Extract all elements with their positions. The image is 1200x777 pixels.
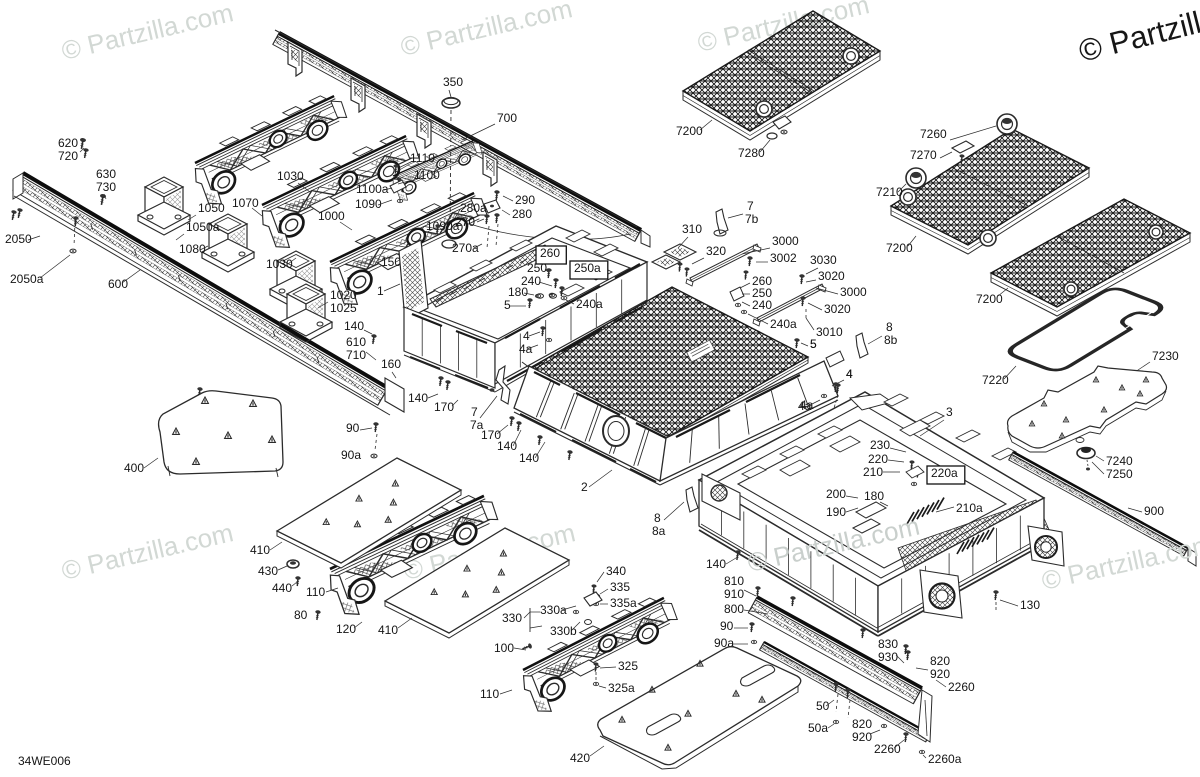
svg-text:230: 230 bbox=[870, 438, 890, 452]
svg-text:810: 810 bbox=[724, 574, 744, 588]
svg-text:3002: 3002 bbox=[770, 251, 797, 265]
svg-text:2260: 2260 bbox=[874, 742, 901, 756]
svg-text:280: 280 bbox=[512, 207, 532, 221]
svg-text:7280: 7280 bbox=[738, 146, 765, 160]
svg-text:330: 330 bbox=[502, 611, 522, 625]
svg-text:4a: 4a bbox=[798, 399, 812, 413]
svg-text:110: 110 bbox=[480, 687, 499, 701]
svg-text:1110: 1110 bbox=[410, 151, 435, 165]
svg-text:710: 710 bbox=[346, 348, 366, 362]
svg-text:720: 720 bbox=[58, 149, 78, 163]
svg-text:1100a: 1100a bbox=[356, 182, 389, 196]
svg-text:8: 8 bbox=[654, 511, 661, 525]
svg-text:220: 220 bbox=[868, 452, 888, 466]
svg-text:90a: 90a bbox=[341, 448, 361, 462]
svg-text:5: 5 bbox=[504, 298, 511, 312]
svg-text:270: 270 bbox=[455, 215, 475, 229]
svg-text:7200: 7200 bbox=[976, 292, 1003, 306]
svg-text:8b: 8b bbox=[884, 333, 898, 347]
svg-text:610: 610 bbox=[346, 335, 366, 349]
svg-text:7200: 7200 bbox=[676, 124, 703, 138]
svg-text:330b: 330b bbox=[550, 624, 577, 638]
svg-text:340: 340 bbox=[606, 564, 626, 578]
svg-text:3000: 3000 bbox=[772, 234, 799, 248]
svg-text:910: 910 bbox=[724, 587, 744, 601]
svg-text:270a: 270a bbox=[452, 241, 479, 255]
svg-text:2260: 2260 bbox=[948, 680, 975, 694]
svg-text:900: 900 bbox=[1144, 504, 1164, 518]
svg-text:1050a: 1050a bbox=[186, 220, 220, 234]
svg-text:240a: 240a bbox=[576, 297, 603, 311]
svg-text:170: 170 bbox=[434, 400, 454, 414]
svg-text:310: 310 bbox=[682, 222, 702, 236]
svg-text:4: 4 bbox=[846, 367, 853, 381]
svg-text:250a: 250a bbox=[574, 261, 601, 275]
svg-text:4a: 4a bbox=[519, 342, 533, 356]
svg-text:140: 140 bbox=[344, 319, 364, 333]
svg-text:240a: 240a bbox=[770, 317, 797, 331]
svg-text:180: 180 bbox=[508, 285, 528, 299]
svg-text:440: 440 bbox=[272, 581, 292, 595]
svg-text:290: 290 bbox=[515, 193, 535, 207]
svg-text:200: 200 bbox=[826, 487, 846, 501]
svg-text:325a: 325a bbox=[608, 681, 635, 695]
svg-text:8a: 8a bbox=[652, 524, 666, 538]
svg-text:3020: 3020 bbox=[824, 302, 851, 316]
svg-text:180: 180 bbox=[864, 489, 884, 503]
svg-text:920: 920 bbox=[930, 667, 950, 681]
svg-text:410: 410 bbox=[378, 623, 398, 637]
svg-text:930: 930 bbox=[878, 650, 898, 664]
svg-text:820: 820 bbox=[852, 717, 872, 731]
svg-text:34WE006: 34WE006 bbox=[18, 754, 71, 768]
svg-text:1: 1 bbox=[377, 284, 384, 298]
svg-text:7250: 7250 bbox=[1106, 467, 1133, 481]
svg-text:210: 210 bbox=[863, 465, 883, 479]
svg-text:100: 100 bbox=[494, 641, 514, 655]
svg-text:7: 7 bbox=[747, 199, 754, 213]
svg-text:130: 130 bbox=[1020, 598, 1040, 612]
svg-text:120: 120 bbox=[336, 622, 356, 636]
svg-text:7270: 7270 bbox=[910, 148, 937, 162]
svg-text:7230: 7230 bbox=[1152, 349, 1179, 363]
svg-text:3020: 3020 bbox=[818, 269, 845, 283]
svg-text:335: 335 bbox=[610, 580, 630, 594]
svg-text:2050: 2050 bbox=[5, 232, 32, 246]
svg-text:210a: 210a bbox=[956, 501, 983, 515]
svg-text:280a: 280a bbox=[460, 201, 487, 215]
svg-text:140: 140 bbox=[519, 451, 539, 465]
svg-text:410: 410 bbox=[250, 543, 270, 557]
svg-text:7260: 7260 bbox=[920, 127, 947, 141]
svg-text:5: 5 bbox=[810, 337, 817, 351]
svg-text:150: 150 bbox=[381, 255, 401, 269]
svg-text:600: 600 bbox=[108, 277, 128, 291]
svg-text:350: 350 bbox=[443, 75, 463, 89]
svg-text:1100: 1100 bbox=[414, 168, 440, 182]
svg-text:260: 260 bbox=[540, 246, 560, 260]
svg-text:50: 50 bbox=[816, 699, 830, 713]
svg-text:820: 820 bbox=[930, 654, 950, 668]
svg-text:140: 140 bbox=[706, 557, 726, 571]
svg-text:430: 430 bbox=[258, 564, 278, 578]
svg-text:7220: 7220 bbox=[982, 373, 1009, 387]
svg-text:110: 110 bbox=[306, 585, 325, 599]
svg-text:7: 7 bbox=[471, 405, 478, 419]
svg-text:7240: 7240 bbox=[1106, 454, 1133, 468]
svg-text:630: 630 bbox=[96, 167, 116, 181]
svg-text:700: 700 bbox=[497, 111, 517, 125]
svg-text:3: 3 bbox=[946, 405, 953, 419]
svg-text:8: 8 bbox=[886, 320, 893, 334]
svg-text:240: 240 bbox=[752, 298, 772, 312]
svg-text:7210: 7210 bbox=[876, 185, 903, 199]
svg-text:140: 140 bbox=[497, 439, 517, 453]
svg-text:2050a: 2050a bbox=[10, 272, 44, 286]
svg-text:1030: 1030 bbox=[277, 169, 304, 183]
svg-text:800: 800 bbox=[724, 602, 744, 616]
svg-text:2: 2 bbox=[581, 480, 588, 494]
svg-text:7200: 7200 bbox=[886, 241, 913, 255]
svg-text:2260a: 2260a bbox=[928, 752, 962, 766]
svg-text:1030: 1030 bbox=[266, 257, 293, 271]
svg-text:320: 320 bbox=[706, 244, 726, 258]
svg-text:140: 140 bbox=[408, 391, 428, 405]
svg-text:1070: 1070 bbox=[232, 196, 259, 210]
svg-text:325: 325 bbox=[618, 659, 638, 673]
svg-text:50a: 50a bbox=[808, 721, 828, 735]
svg-text:1050: 1050 bbox=[198, 201, 225, 215]
svg-text:1090: 1090 bbox=[355, 197, 382, 211]
svg-text:1020: 1020 bbox=[330, 288, 357, 302]
svg-text:1025: 1025 bbox=[330, 301, 357, 315]
svg-text:830: 830 bbox=[878, 637, 898, 651]
svg-text:7b: 7b bbox=[745, 212, 759, 226]
svg-text:4: 4 bbox=[523, 329, 530, 343]
svg-text:90: 90 bbox=[346, 421, 360, 435]
svg-text:190: 190 bbox=[826, 505, 846, 519]
svg-text:3030: 3030 bbox=[810, 253, 837, 267]
svg-text:250: 250 bbox=[527, 261, 547, 275]
svg-text:3000: 3000 bbox=[840, 285, 867, 299]
svg-text:1000: 1000 bbox=[318, 209, 345, 223]
svg-text:220a: 220a bbox=[931, 466, 958, 480]
svg-text:160: 160 bbox=[381, 357, 401, 371]
svg-text:730: 730 bbox=[96, 180, 116, 194]
svg-text:335a: 335a bbox=[610, 596, 637, 610]
svg-text:90: 90 bbox=[720, 619, 734, 633]
svg-text:920: 920 bbox=[852, 730, 872, 744]
svg-text:3010: 3010 bbox=[816, 325, 843, 339]
svg-text:400: 400 bbox=[124, 461, 144, 475]
svg-text:620: 620 bbox=[58, 136, 78, 150]
svg-text:420: 420 bbox=[570, 751, 590, 765]
svg-text:80: 80 bbox=[294, 608, 308, 622]
